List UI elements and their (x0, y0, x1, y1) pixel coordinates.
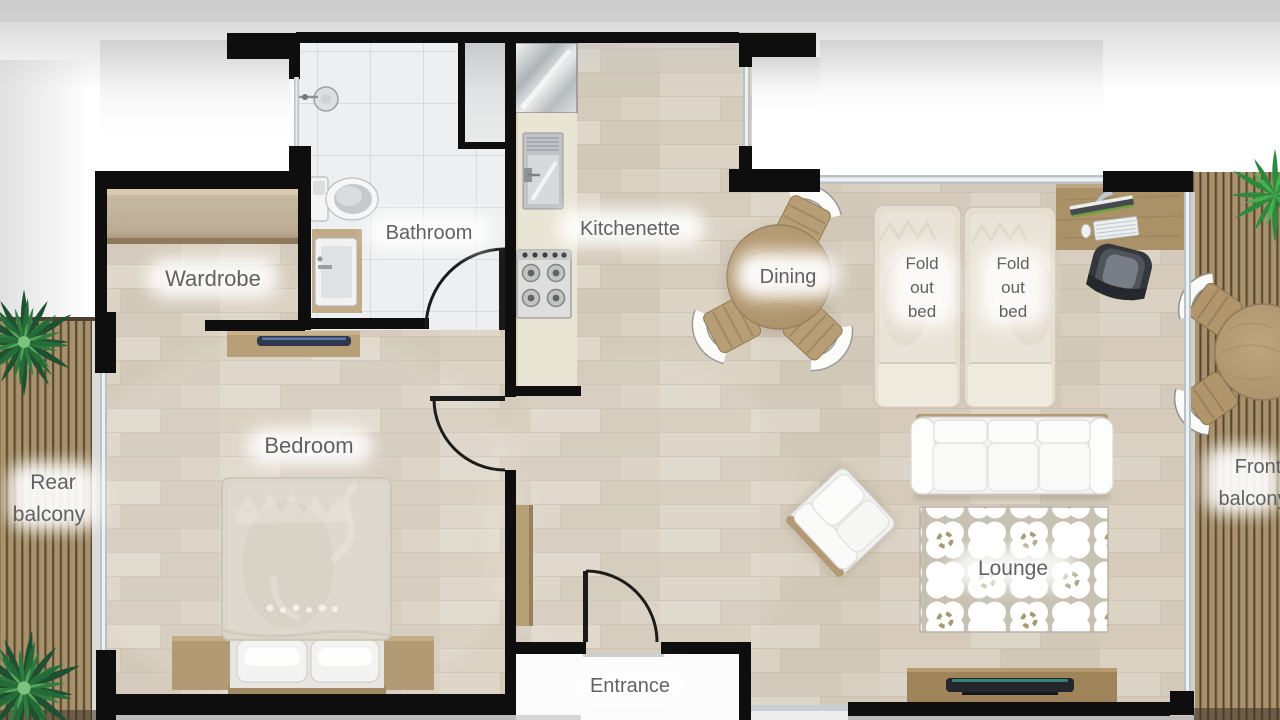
svg-text:out: out (910, 278, 934, 297)
svg-text:Lounge: Lounge (978, 557, 1048, 580)
svg-text:Entrance: Entrance (590, 675, 670, 697)
svg-text:out: out (1001, 278, 1025, 297)
svg-text:Dining: Dining (760, 266, 817, 288)
svg-text:Fold: Fold (996, 254, 1029, 273)
svg-text:Front: Front (1235, 456, 1280, 478)
svg-text:Kitchenette: Kitchenette (580, 218, 680, 240)
svg-text:bed: bed (999, 302, 1027, 321)
svg-text:Bedroom: Bedroom (264, 433, 353, 458)
svg-text:bed: bed (908, 302, 936, 321)
svg-text:Rear: Rear (30, 471, 76, 494)
svg-text:Fold: Fold (905, 254, 938, 273)
svg-text:Bathroom: Bathroom (386, 222, 473, 244)
svg-text:Wardrobe: Wardrobe (165, 266, 261, 291)
svg-text:balcony: balcony (13, 503, 86, 526)
svg-text:balcony: balcony (1219, 488, 1280, 510)
